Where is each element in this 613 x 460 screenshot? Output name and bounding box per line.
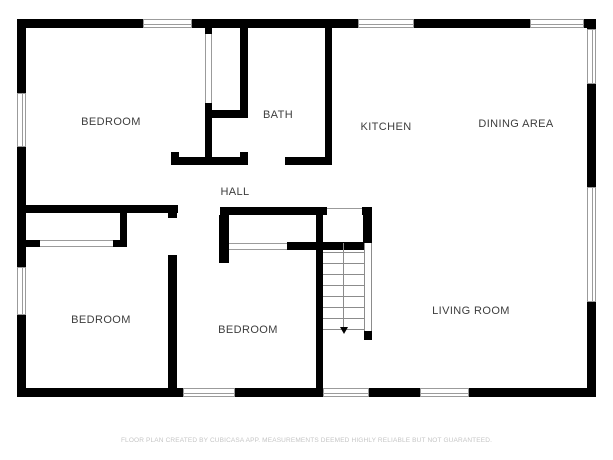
wall-bath-left-upper: [240, 28, 248, 118]
wall-bedroom3-living-divider: [316, 215, 323, 397]
floor-plan-page: BEDROOM BATH KITCHEN DINING AREA HALL BE…: [0, 0, 613, 460]
wall-closet3-north: [287, 242, 372, 250]
closet-sliding-door: [205, 34, 212, 103]
wall-hall-south-leg: [219, 215, 229, 263]
wall-exterior-bottom: [17, 388, 596, 397]
room-label-kitchen: KITCHEN: [360, 121, 411, 133]
room-label-hall: HALL: [220, 186, 249, 198]
window: [183, 388, 235, 397]
wall-hall-north-west: [171, 157, 248, 165]
wall-bedrooms-divider: [168, 255, 177, 397]
wall-stair-top-stub: [362, 207, 372, 215]
room-label-dining-area: DINING AREA: [478, 118, 553, 130]
stair-direction-line: [343, 243, 344, 327]
wall-closet2-stub-right: [113, 240, 127, 247]
wall-hall-south: [220, 207, 327, 215]
wall-divider-cap: [168, 205, 177, 218]
wall-closet2-stub-left: [25, 240, 40, 247]
sliding-glass-door: [587, 187, 596, 302]
room-label-bedroom-bottom-middle: BEDROOM: [218, 324, 278, 336]
window: [17, 267, 26, 315]
stairs-down-arrow-icon: [340, 327, 348, 334]
room-label-bedroom-top-left: BEDROOM: [81, 116, 141, 128]
window: [530, 19, 584, 28]
floor-plan: BEDROOM BATH KITCHEN DINING AREA HALL BE…: [0, 0, 613, 460]
footer-disclaimer: FLOOR PLAN CREATED BY CUBICASA APP. MEAS…: [0, 437, 613, 444]
closet-sliding-door: [229, 243, 287, 250]
window: [420, 388, 469, 397]
window: [358, 19, 414, 28]
closet-sliding-door: [40, 240, 113, 247]
wall-bedroom1-bottom: [25, 205, 178, 213]
room-label-bath: BATH: [263, 109, 293, 121]
room-label-bedroom-bottom-left: BEDROOM: [71, 314, 131, 326]
stair-opening-line: [327, 208, 362, 209]
window: [323, 388, 369, 397]
window: [587, 29, 596, 84]
room-label-living-room: LIVING ROOM: [432, 305, 510, 317]
window: [17, 93, 26, 147]
window: [143, 19, 192, 28]
stair-railing: [364, 243, 372, 331]
wall-stair-right-upper: [363, 215, 372, 243]
wall-bath-right: [325, 28, 332, 165]
wall-exterior-top: [17, 19, 596, 28]
